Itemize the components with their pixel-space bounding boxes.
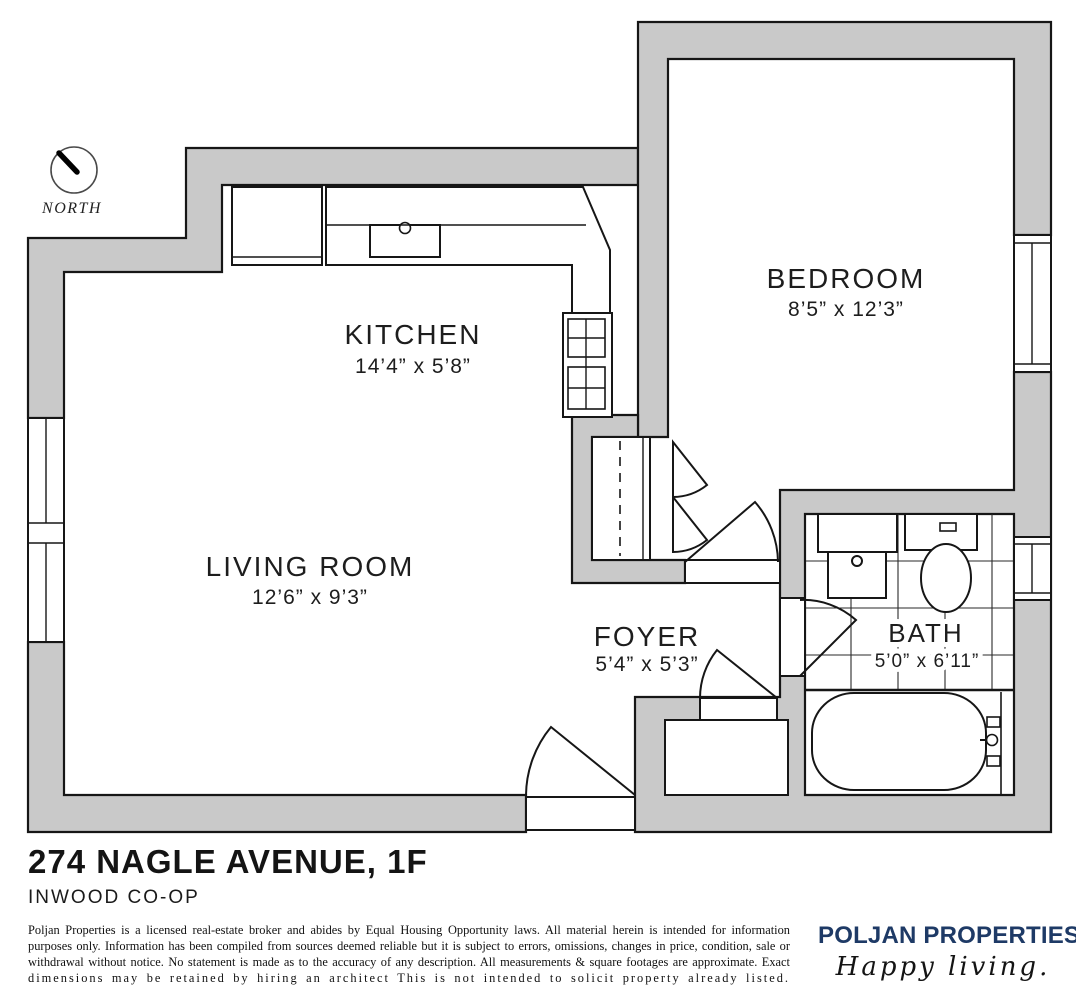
living-room-dims: 12’6” x 9’3” — [252, 586, 368, 609]
living-room-label: LIVING ROOM — [206, 551, 415, 582]
disclaimer-line: Poljan Properties is a licensed real-est… — [28, 922, 790, 938]
sink-vanity — [818, 514, 897, 552]
brand-tagline: Happy living. — [818, 952, 1068, 982]
disclaimer-line: purposes only. Information has been comp… — [28, 938, 790, 954]
disclaimer-line: withdrawal without notice. No statement … — [28, 954, 790, 970]
tub-faucet-handle-bottom — [987, 756, 1000, 766]
kitchen-cabinet — [232, 187, 322, 265]
disclaimer-line: dimensions may be retained by hiring an … — [28, 970, 790, 986]
page-title: 274 NAGLE AVENUE, 1F — [28, 843, 1048, 881]
foyer-label: FOYER — [594, 621, 700, 652]
north-label: NORTH — [41, 200, 102, 217]
wall-bottom-left — [28, 642, 526, 832]
bath-label: BATH — [888, 618, 963, 648]
brand-logo: POLJAN PROPERTIES Happy living. — [818, 922, 1068, 982]
foyer-dims: 5’4” x 5’3” — [595, 653, 698, 676]
entry-door-leaf — [526, 797, 635, 830]
threshold-bedroom-door — [685, 560, 780, 583]
door-openings — [526, 560, 805, 830]
foyer-door-swing — [700, 650, 777, 698]
kitchen-dims: 14’4” x 5’8” — [355, 355, 471, 378]
bifold-doors — [673, 442, 707, 552]
page-subtitle: INWOOD CO-OP — [28, 887, 1048, 909]
tub-faucet-icon — [987, 735, 998, 746]
bathtub — [812, 693, 986, 790]
kitchen-label: KITCHEN — [345, 319, 482, 350]
title-block: 274 NAGLE AVENUE, 1F INWOOD CO-OP — [28, 843, 1048, 909]
bath-dims: 5’0” x 6’11” — [875, 651, 980, 672]
wall-bedroom — [638, 22, 1051, 437]
opening-foyer-door — [700, 698, 777, 720]
closet-foyer — [665, 720, 788, 795]
kitchen-counters — [232, 187, 612, 417]
brand-name: POLJAN PROPERTIES — [818, 922, 1068, 950]
sink-drain-icon — [852, 556, 862, 566]
tub-faucet-handle-top — [987, 717, 1000, 727]
bedroom-dims: 8’5” x 12’3” — [788, 298, 904, 321]
disclaimer: Poljan Properties is a licensed real-est… — [28, 922, 790, 986]
bedroom-label: BEDROOM — [767, 263, 926, 294]
closet-box — [592, 437, 650, 560]
bifold-door-top — [673, 442, 707, 497]
toilet-flush-button — [940, 523, 956, 531]
floor-plan: NORTH KITCHEN 14’4” x 5’8” BEDROOM 8’5” … — [0, 0, 1076, 840]
kitchen-faucet-icon — [400, 223, 411, 234]
bedroom-closet — [592, 437, 650, 560]
entry-door-swing — [526, 727, 635, 795]
bifold-door-bottom — [673, 497, 707, 552]
bath-door-swing — [800, 600, 856, 676]
north-compass-icon: NORTH — [41, 147, 102, 217]
opening-bath-door — [780, 598, 805, 676]
toilet-bowl — [921, 544, 971, 612]
